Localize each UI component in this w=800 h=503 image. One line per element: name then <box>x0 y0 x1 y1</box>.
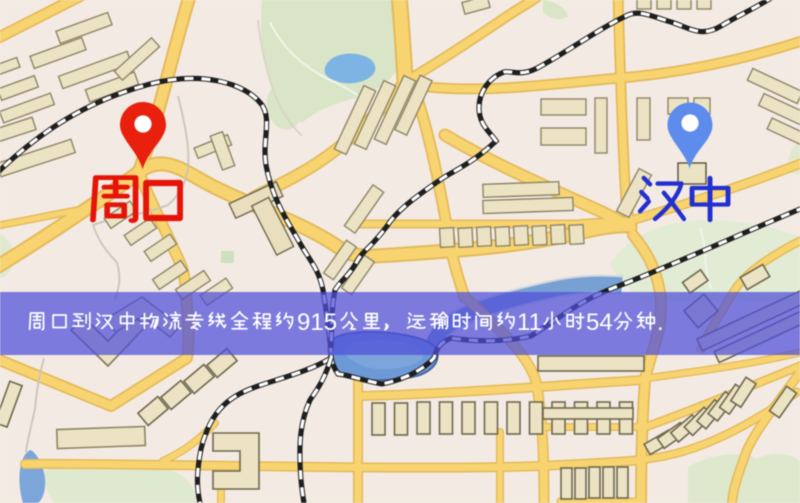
svg-text:915: 915 <box>297 309 337 336</box>
svg-text:54: 54 <box>586 309 613 336</box>
svg-text:11: 11 <box>517 309 542 336</box>
svg-text:.: . <box>657 309 664 336</box>
